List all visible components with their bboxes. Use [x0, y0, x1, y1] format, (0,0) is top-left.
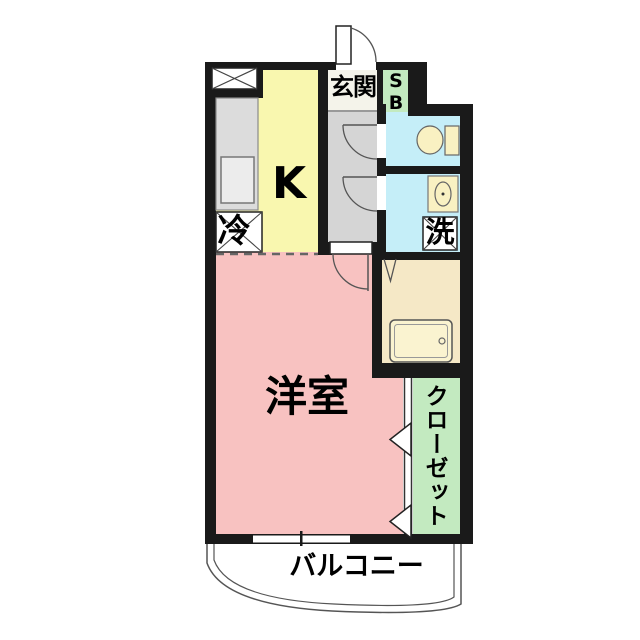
bathtub: [390, 320, 452, 362]
entrance-door-leaf: [336, 26, 351, 64]
label-balcony: バルコニー: [284, 553, 429, 581]
wall-toilet-wash: [386, 166, 460, 174]
wall-right: [460, 104, 473, 544]
room-door-frame: [330, 242, 372, 254]
wall-wash-bottom: [372, 252, 460, 260]
washbasin-drain-dot: [442, 193, 445, 196]
window-center-tick: [300, 531, 303, 546]
label-shoe-box: SB: [385, 70, 405, 114]
hallway-floor: [328, 110, 377, 242]
label-western-room: 洋室: [258, 375, 356, 419]
kitchen-sink: [221, 157, 254, 203]
label-washer: 洗: [423, 217, 457, 247]
wall-door-right-chunk: [372, 242, 383, 256]
label-kitchen: K: [267, 161, 311, 207]
toilet-door-opening: [377, 124, 386, 158]
washroom-door-opening: [377, 176, 386, 210]
wall-bath-bottom: [372, 363, 473, 378]
western-room-floor-ext: [377, 378, 403, 534]
entrance-door-swing-arc: [351, 28, 376, 62]
wall-left: [205, 62, 216, 544]
toilet-tank: [445, 126, 459, 155]
label-closet: クローゼット: [422, 384, 446, 536]
floor-plan: 玄関 SB K 冷 洗 洋室 クローゼット バルコニー: [0, 0, 640, 640]
floor-plan-drawing: [0, 0, 640, 640]
label-refrigerator: 冷: [211, 214, 257, 249]
wall-room-bath: [372, 252, 382, 378]
label-entrance: 玄関: [326, 75, 380, 100]
toilet-bowl-icon: [417, 126, 443, 154]
